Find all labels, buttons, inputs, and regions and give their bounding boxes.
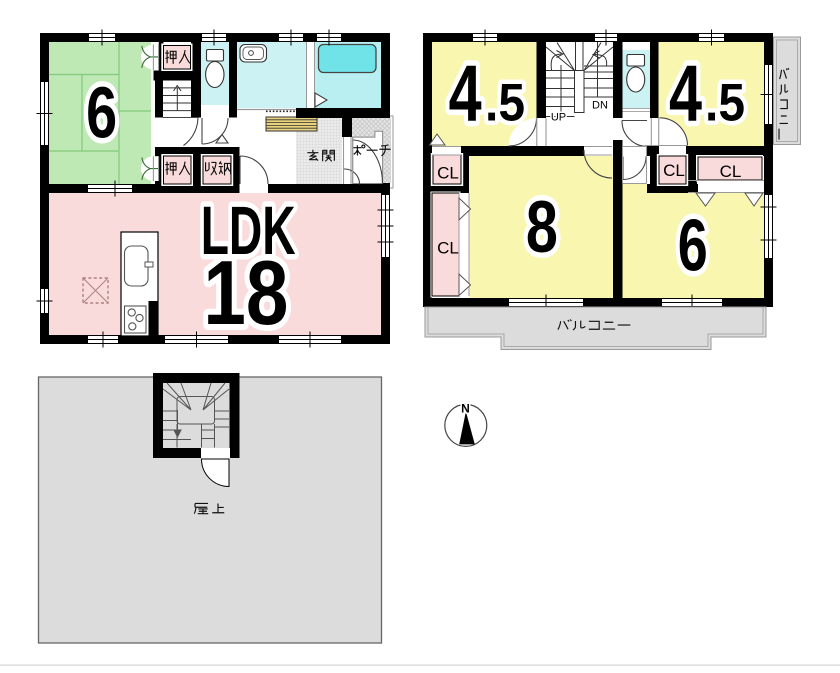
svg-text:6: 6 [86, 74, 117, 154]
svg-text:6: 6 [678, 206, 708, 287]
svg-text:UP: UP [551, 112, 566, 124]
svg-text:CL: CL [437, 239, 459, 258]
svg-text:.5: .5 [485, 74, 525, 133]
svg-text:.5: .5 [705, 74, 745, 133]
svg-text:4: 4 [669, 49, 702, 138]
svg-text:DN: DN [592, 100, 608, 112]
svg-text:18: 18 [203, 243, 288, 344]
svg-text:CL: CL [663, 161, 685, 180]
svg-text:4: 4 [449, 49, 482, 138]
svg-text:8: 8 [526, 187, 558, 268]
svg-text:N: N [461, 402, 470, 416]
svg-text:CL: CL [437, 164, 459, 183]
svg-text:CL: CL [720, 162, 742, 181]
